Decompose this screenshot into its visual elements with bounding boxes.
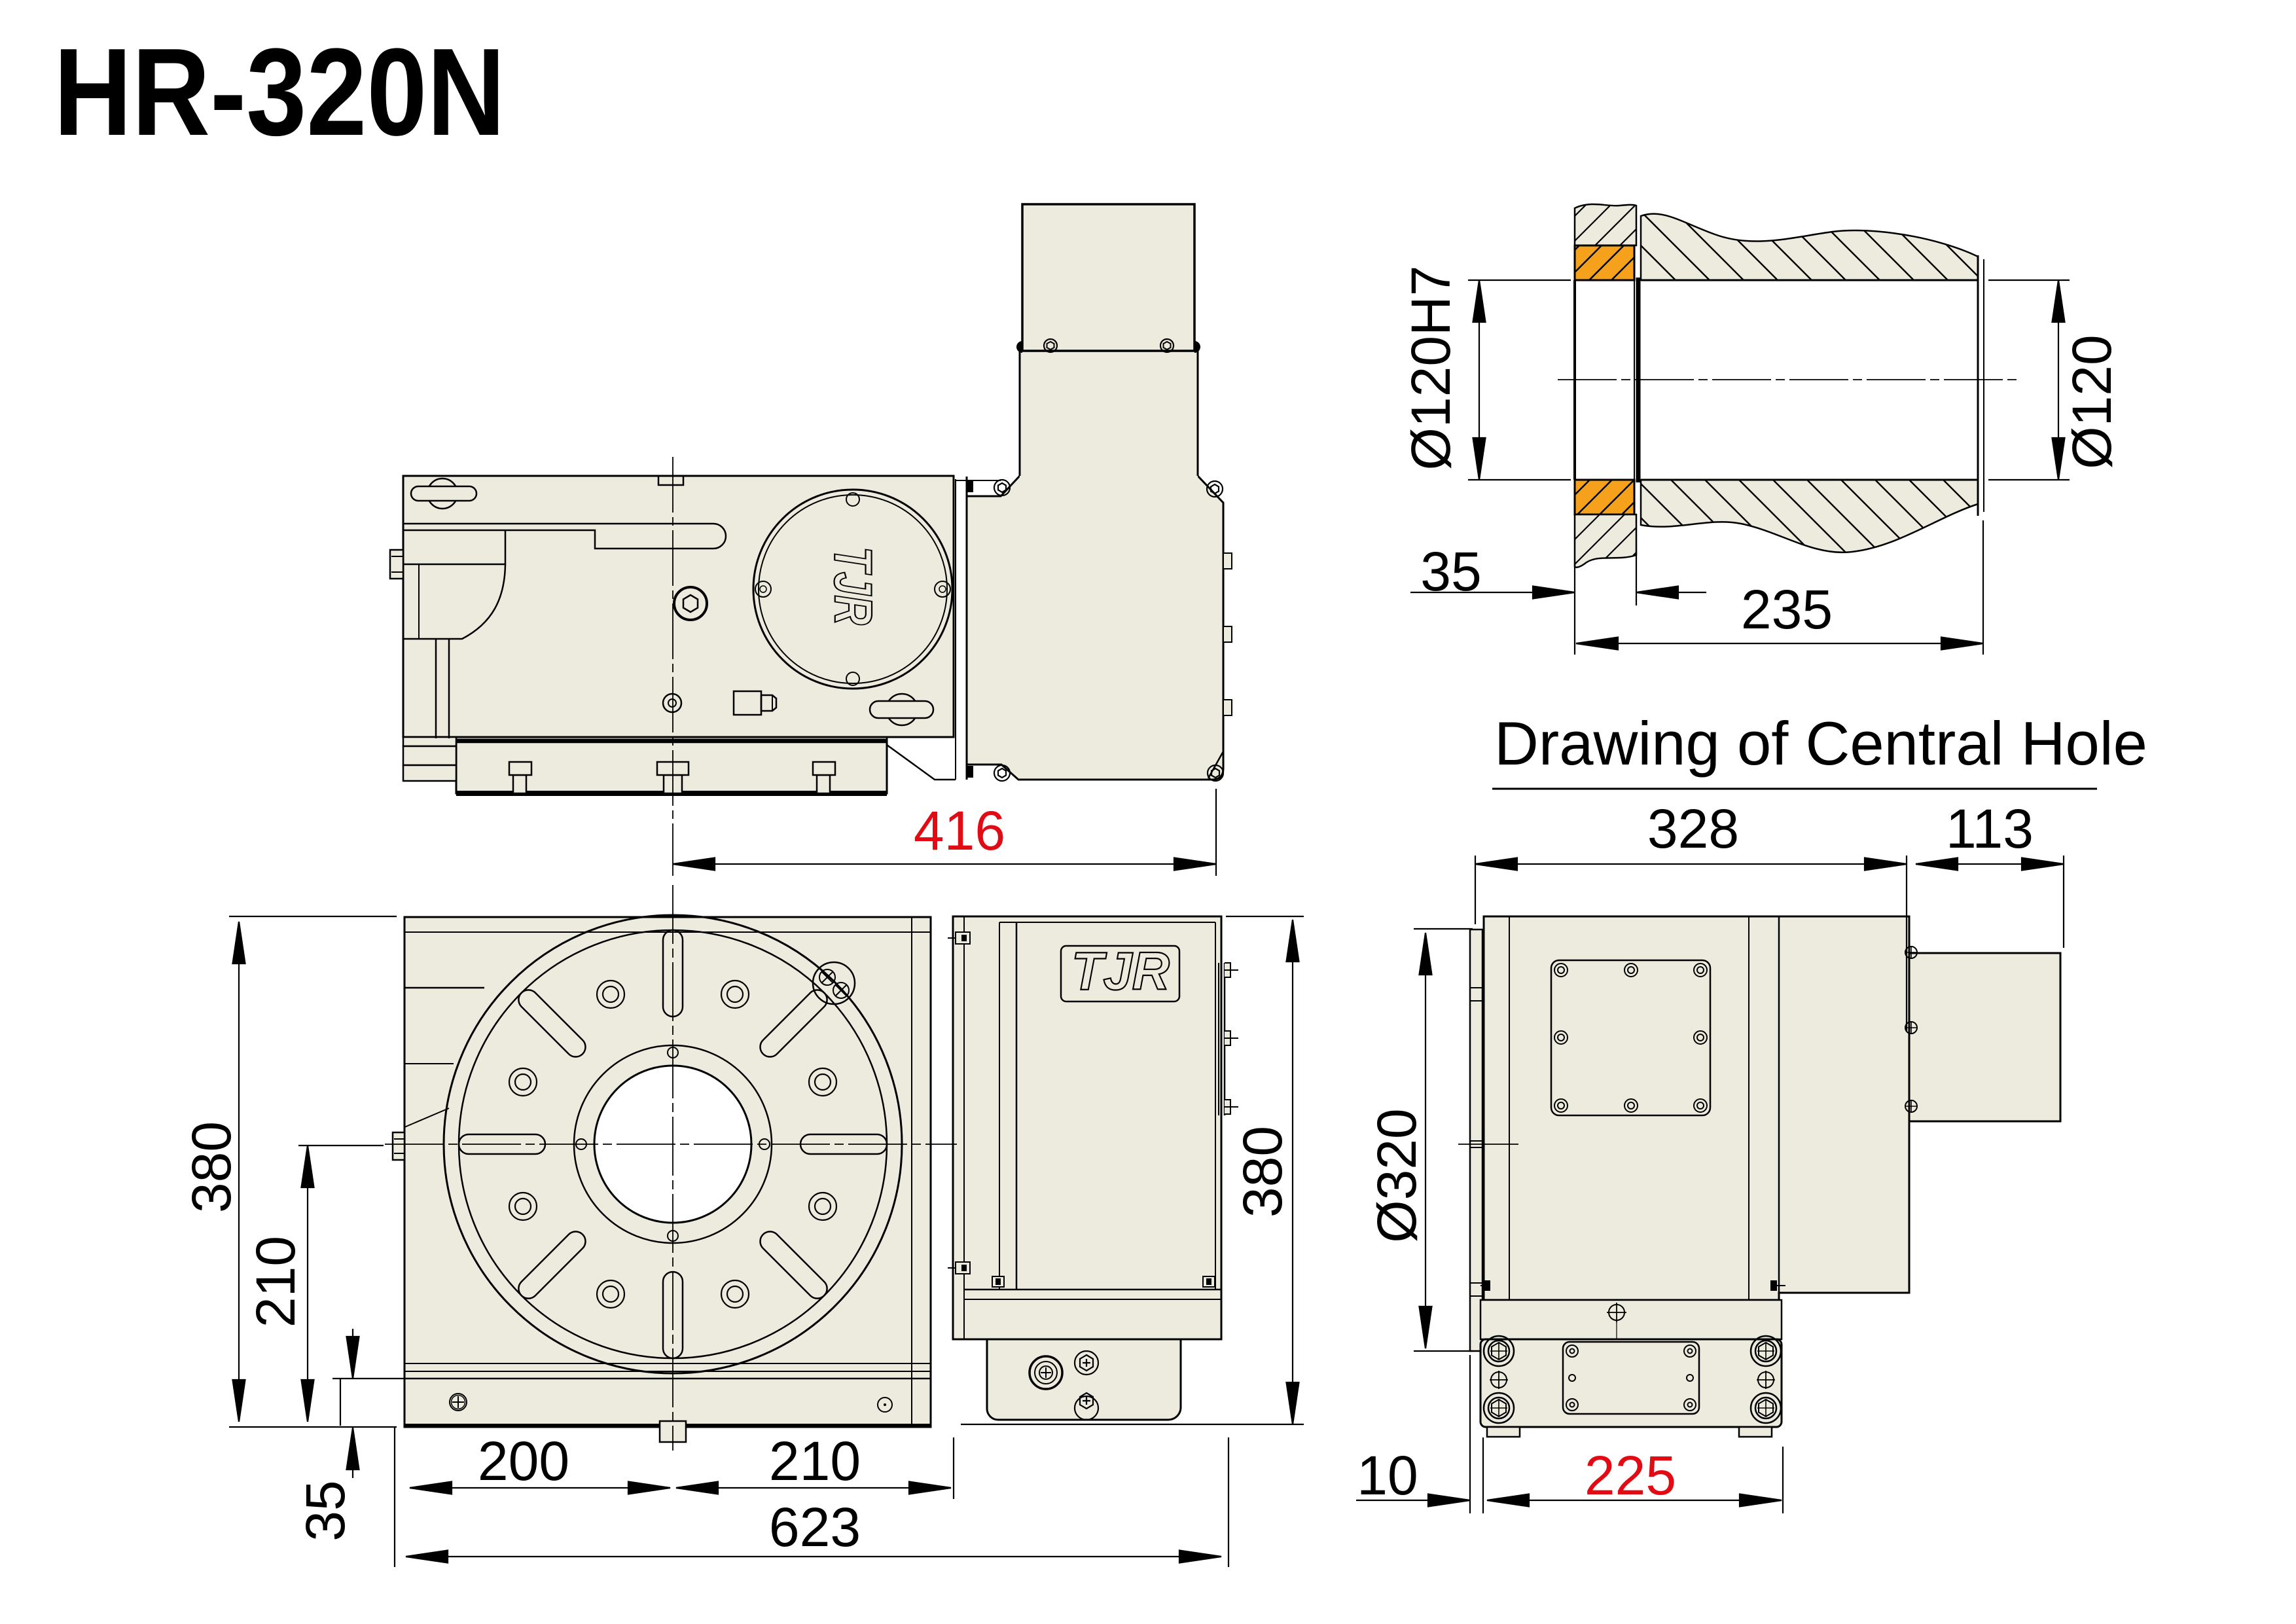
svg-text:416: 416 <box>914 800 1005 861</box>
svg-text:TJR: TJR <box>823 547 882 625</box>
svg-text:113: 113 <box>1946 798 2034 859</box>
svg-text:10: 10 <box>1357 1445 1418 1506</box>
svg-text:328: 328 <box>1647 798 1739 859</box>
svg-text:380: 380 <box>181 1121 242 1213</box>
svg-text:Ø120: Ø120 <box>2061 334 2123 469</box>
svg-text:35: 35 <box>1420 541 1481 602</box>
svg-text:200: 200 <box>478 1430 569 1492</box>
svg-text:235: 235 <box>1741 579 1833 640</box>
svg-text:35: 35 <box>295 1480 356 1541</box>
svg-text:TJR: TJR <box>1071 942 1170 1001</box>
svg-text:623: 623 <box>769 1496 861 1558</box>
svg-text:225: 225 <box>1585 1445 1676 1506</box>
svg-text:Ø320: Ø320 <box>1366 1108 1427 1243</box>
svg-text:HR-320N: HR-320N <box>54 23 505 162</box>
svg-text:210: 210 <box>245 1236 306 1327</box>
svg-text:Drawing of Central Hole: Drawing of Central Hole <box>1494 709 2147 778</box>
svg-text:210: 210 <box>769 1430 861 1492</box>
svg-text:380: 380 <box>1232 1126 1293 1218</box>
svg-text:Ø120H7: Ø120H7 <box>1400 266 1462 471</box>
